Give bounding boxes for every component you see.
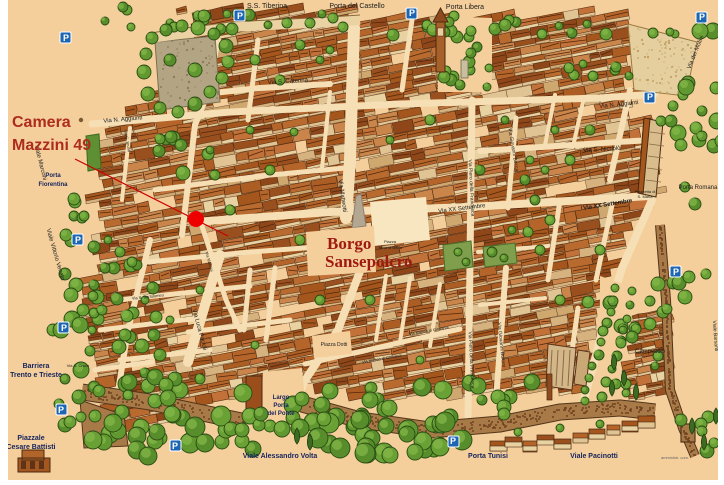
- svg-text:Porta Libera: Porta Libera: [446, 4, 484, 11]
- svg-text:P: P: [409, 8, 415, 18]
- svg-text:amministr. com.: amministr. com.: [661, 455, 689, 460]
- svg-text:Fiorentina: Fiorentina: [38, 182, 68, 188]
- svg-text:Porta Tunisi: Porta Tunisi: [468, 453, 508, 460]
- svg-text:Sansepolcro: Sansepolcro: [325, 252, 413, 271]
- svg-text:Porta Romana: Porta Romana: [679, 185, 718, 191]
- svg-text:Campeccio: Campeccio: [635, 349, 666, 355]
- svg-text:Viale Alessandro Volta: Viale Alessandro Volta: [243, 453, 318, 460]
- svg-text:Porta del Castello: Porta del Castello: [329, 3, 384, 10]
- svg-text:Via S. Croce: Via S. Croce: [67, 363, 90, 368]
- svg-text:P: P: [58, 405, 64, 415]
- svg-text:P: P: [172, 441, 178, 451]
- svg-text:S. Maria: S. Maria: [638, 194, 654, 199]
- svg-text:Torre di Berta: Torre di Berta: [378, 245, 403, 250]
- svg-text:Borgo: Borgo: [327, 234, 371, 253]
- svg-text:Porta: Porta: [45, 173, 61, 179]
- svg-text:P: P: [450, 436, 456, 446]
- svg-text:P: P: [237, 11, 243, 21]
- svg-text:P: P: [61, 323, 67, 333]
- svg-text:Trento e Trieste: Trento e Trieste: [10, 372, 62, 379]
- svg-text:Piazza Dotti: Piazza Dotti: [321, 342, 348, 348]
- svg-text:Largo: Largo: [273, 395, 290, 401]
- svg-text:Piazzale: Piazzale: [17, 435, 44, 442]
- svg-text:Piazza: Piazza: [384, 239, 397, 244]
- svg-text:Porta: Porta: [273, 403, 289, 409]
- svg-text:P: P: [63, 33, 69, 43]
- svg-text:P: P: [75, 235, 81, 245]
- svg-text:S.S. Tiberina: S.S. Tiberina: [247, 3, 287, 10]
- svg-text:Camera: Camera: [12, 114, 71, 131]
- svg-text:Cesare Battisti: Cesare Battisti: [6, 444, 55, 451]
- svg-text:Barriera: Barriera: [23, 363, 50, 370]
- svg-text:Mazzini 49: Mazzini 49: [12, 137, 91, 154]
- svg-text:P: P: [673, 267, 679, 277]
- svg-text:P: P: [647, 92, 653, 102]
- svg-text:P: P: [699, 12, 705, 22]
- svg-text:del Ponte: del Ponte: [267, 411, 295, 417]
- svg-text:Viale Pacinotti: Viale Pacinotti: [570, 453, 618, 460]
